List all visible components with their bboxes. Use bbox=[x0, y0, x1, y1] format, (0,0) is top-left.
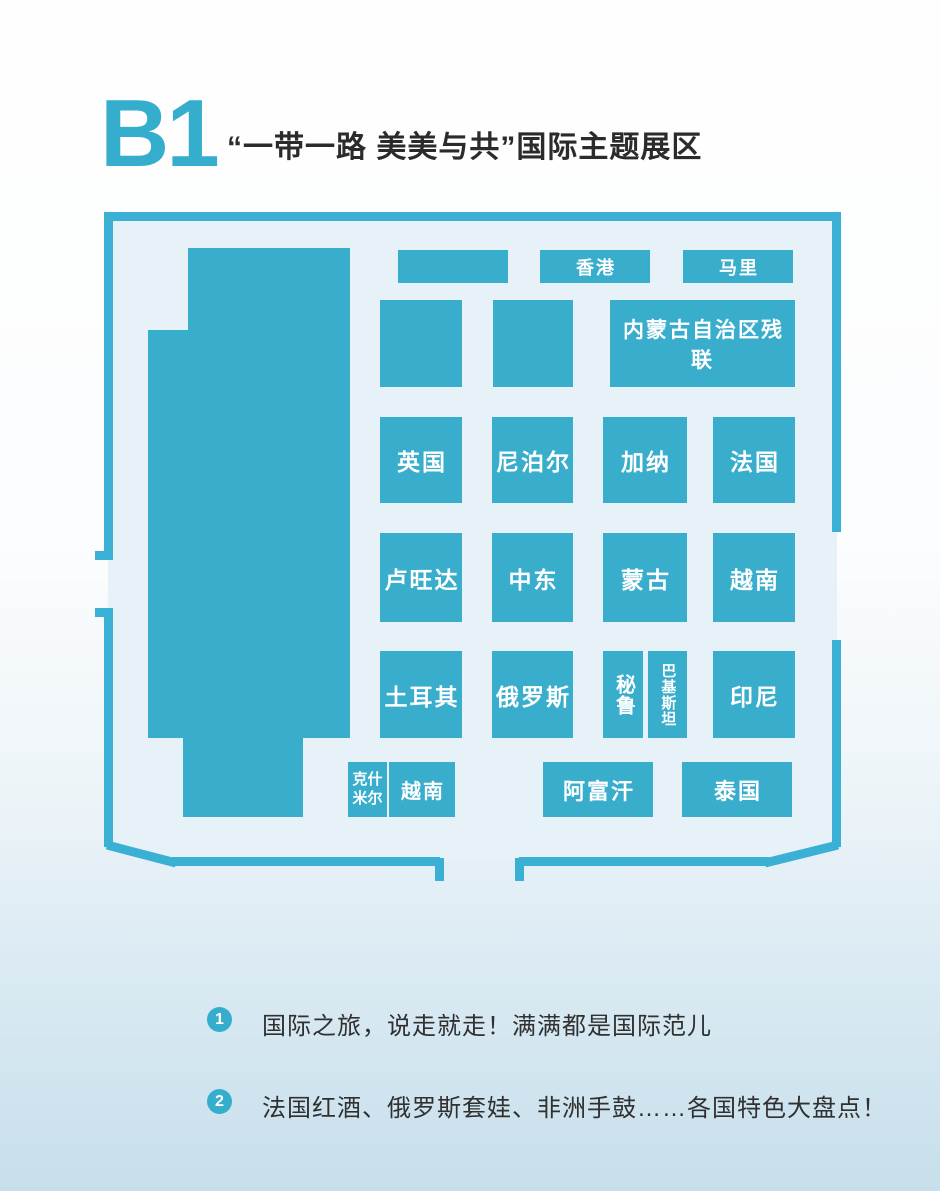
booth-unlabeled-mid-2 bbox=[493, 300, 573, 387]
booth-zhongdong: 中东 bbox=[492, 533, 573, 622]
booth-tuerqi: 土耳其 bbox=[380, 651, 462, 738]
booth-faguo: 法国 bbox=[713, 417, 795, 503]
booth-bilu: 秘鲁 bbox=[603, 651, 643, 738]
booth-niboer: 尼泊尔 bbox=[492, 417, 573, 503]
floor-plan: 香港马里内蒙古自治区残联英国尼泊尔加纳法国卢旺达中东蒙古越南土耳其俄罗斯秘鲁巴基… bbox=[90, 205, 850, 895]
booth-yuenan-east: 越南 bbox=[713, 533, 795, 622]
booth-unlabeled-mid-1 bbox=[380, 300, 462, 387]
booth-large-block bbox=[148, 248, 350, 817]
booth-mali: 马里 bbox=[683, 250, 793, 283]
booth-neimenggu-canlian: 内蒙古自治区残联 bbox=[610, 300, 795, 387]
booth-yinni: 印尼 bbox=[713, 651, 795, 738]
note-1-text: 国际之旅，说走就走！满满都是国际范儿 bbox=[262, 1006, 712, 1041]
note-2-badge: 2 bbox=[207, 1089, 232, 1114]
booth-eluosi: 俄罗斯 bbox=[492, 651, 573, 738]
booth-yingguo: 英国 bbox=[380, 417, 462, 503]
note-2-text: 法国红酒、俄罗斯套娃、非洲手鼓……各国特色大盘点！ bbox=[262, 1088, 887, 1123]
booth-taiguo: 泰国 bbox=[682, 762, 792, 817]
booth-hongkong: 香港 bbox=[540, 250, 650, 283]
section-code: B1 bbox=[100, 86, 217, 182]
booth-menggu: 蒙古 bbox=[603, 533, 687, 622]
booth-luwangda: 卢旺达 bbox=[380, 533, 462, 622]
booth-unlabeled-top bbox=[398, 250, 508, 283]
note-1-badge: 1 bbox=[207, 1007, 232, 1032]
section-title: “一带一路 美美与共”国际主题展区 bbox=[227, 122, 702, 166]
booth-jiana: 加纳 bbox=[603, 417, 687, 503]
booth-keshimier: 克什 米尔 bbox=[348, 762, 387, 817]
booth-afuhan: 阿富汗 bbox=[543, 762, 653, 817]
booth-bajisitan: 巴基斯坦 bbox=[648, 651, 687, 738]
booth-yuenan-south: 越南 bbox=[389, 762, 455, 817]
